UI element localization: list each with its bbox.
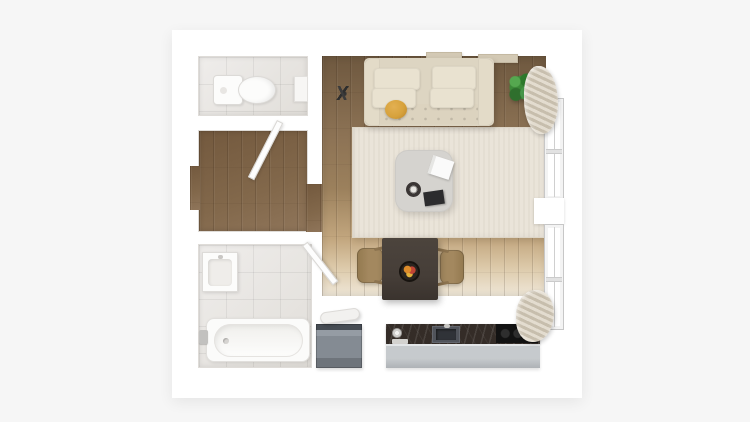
sofa	[364, 58, 494, 126]
dining-chair-right	[440, 250, 464, 284]
toilet-bowl	[238, 76, 276, 104]
dark-decor-object	[332, 86, 354, 100]
washbasin	[202, 252, 238, 292]
kitchen-sink	[432, 326, 460, 343]
hallway-floor	[198, 130, 308, 232]
window-pier	[534, 198, 564, 224]
plate	[392, 328, 402, 338]
passage-floor	[306, 184, 323, 232]
floor-plan-image	[0, 0, 750, 422]
ochre-pouf-pillow	[385, 100, 407, 119]
black-book	[423, 190, 445, 207]
sofa-cushion	[430, 88, 474, 108]
hallway-niche-floor	[190, 166, 200, 210]
kitchen-appliance	[316, 324, 362, 368]
fruit-bowl	[399, 261, 420, 282]
sofa-armrest-right	[478, 58, 494, 126]
kitchen-cabinet-front	[386, 344, 540, 368]
wc-wall-cabinet	[294, 76, 308, 102]
dining-chair-left	[357, 248, 383, 283]
cup	[406, 182, 421, 197]
sofa-cushion	[432, 66, 476, 90]
bathtub-faucet	[199, 330, 208, 344]
sofa-cushion	[374, 68, 420, 90]
bathtub	[206, 318, 310, 362]
